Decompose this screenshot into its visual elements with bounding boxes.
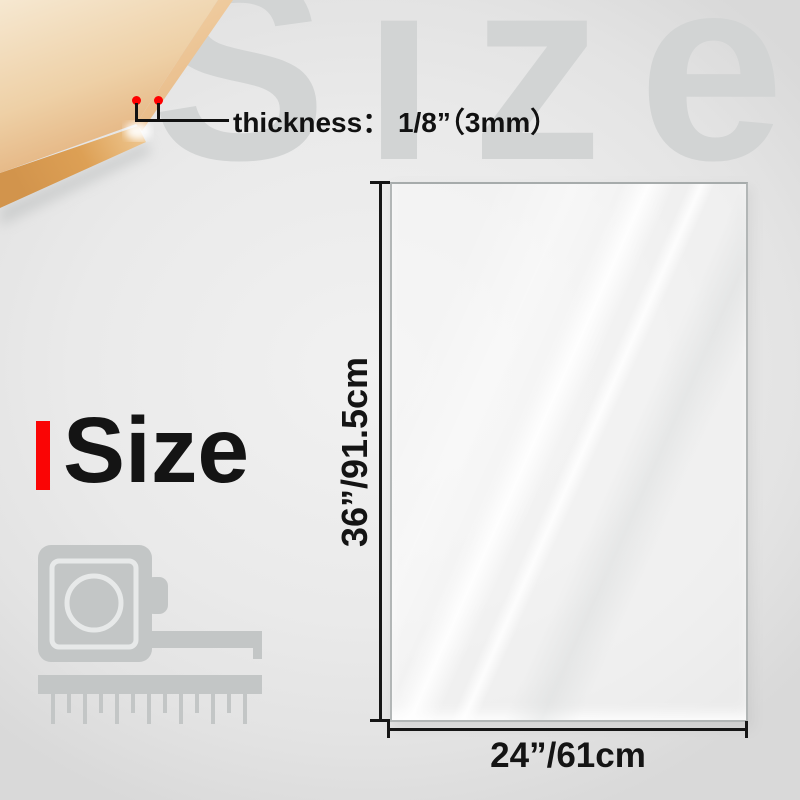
callout-leader-line	[135, 119, 229, 122]
tape-measure-icon	[33, 543, 263, 728]
width-dimension-cap	[387, 721, 390, 738]
section-title: Size	[63, 404, 249, 497]
thickness-label: thickness： 1/8”（3mm）	[233, 101, 558, 141]
product-size-infographic: Size t	[0, 0, 800, 800]
height-dimension-cap	[370, 181, 390, 184]
height-dimension-label: 36”/91.5cm	[334, 357, 376, 547]
ruler-bar	[38, 675, 262, 694]
heading-accent-bar	[36, 421, 50, 490]
tape-hook	[253, 631, 262, 659]
width-dimension-label: 24”/61cm	[490, 736, 646, 776]
height-dimension-line	[379, 182, 382, 722]
width-dimension-line	[388, 728, 748, 731]
acrylic-sheet	[390, 182, 748, 722]
tape-strip	[145, 631, 262, 648]
corner-highlight	[125, 122, 151, 140]
width-dimension-cap	[745, 721, 748, 738]
